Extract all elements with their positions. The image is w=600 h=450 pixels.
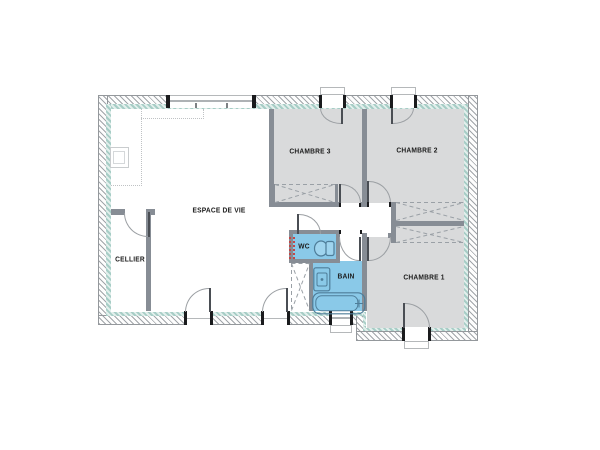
- door-leaf: [286, 288, 288, 312]
- door-threshold: [264, 318, 287, 319]
- bathtub-icon: [312, 292, 366, 315]
- window-frame-line: [170, 95, 252, 96]
- door-leaf-chambre3: [339, 184, 341, 203]
- room-label-espace-de-vie: ESPACE DE VIE: [193, 208, 246, 215]
- toilet-icon: [313, 239, 336, 258]
- window-mullion: [226, 103, 228, 108]
- wardrobe-chambre1: [396, 226, 464, 243]
- door-jamb: [360, 230, 362, 234]
- window-sill-chambre3: [320, 87, 345, 95]
- window-sill-bain: [330, 325, 352, 333]
- door-jamb: [210, 311, 213, 325]
- room-label-chambre2: CHAMBRE 2: [396, 148, 437, 155]
- door-leaf-chambre1: [367, 237, 369, 261]
- floor-plan: ESPACE DE VIE CELLIER CHAMBRE 3 CHAMBRE …: [0, 0, 600, 450]
- window-glass-line: [170, 100, 252, 102]
- window-jamb: [252, 95, 256, 108]
- window-jamb: [343, 95, 346, 108]
- window-chambre3: [319, 95, 346, 108]
- window-jamb: [414, 95, 417, 108]
- door-jamb: [359, 203, 361, 207]
- kitchen-counter: [111, 185, 142, 186]
- door-leaf-chambre2: [367, 181, 369, 203]
- door-jamb: [287, 311, 290, 325]
- window-leaf: [341, 108, 343, 124]
- kitchen-counter: [203, 109, 204, 119]
- door-jamb: [389, 202, 391, 207]
- wardrobe-chambre3: [272, 184, 338, 203]
- door-leaf-cellier: [148, 212, 150, 237]
- wardrobe-chambre2: [396, 202, 464, 221]
- window-mullion: [195, 103, 197, 108]
- kitchen-counter: [141, 109, 142, 186]
- kitchen-counter: [141, 118, 204, 119]
- window-glass-line: [332, 317, 350, 319]
- room-label-chambre3: CHAMBRE 3: [289, 149, 330, 156]
- door-chambre1-exterior: [402, 327, 431, 341]
- door-leaf: [403, 303, 405, 328]
- door-leaf: [209, 288, 211, 312]
- room-label-cellier: CELLIER: [115, 257, 145, 264]
- door-leaf-wc: [297, 214, 299, 234]
- room-label-bain: BAIN: [337, 274, 354, 281]
- wall-chambre3-south-post: [360, 202, 367, 207]
- exterior-wall-bottom-main: [98, 315, 366, 325]
- window-sill-chambre2: [391, 87, 416, 95]
- window-chambre2: [390, 95, 417, 108]
- window-jamb: [319, 95, 322, 108]
- kitchen-sink-bowl: [113, 151, 125, 164]
- window-jamb: [390, 95, 393, 108]
- duct-mark: [289, 237, 291, 259]
- sink-icon: [313, 267, 332, 292]
- duct-mark: [293, 237, 295, 259]
- door-jamb: [428, 327, 431, 341]
- door-jamb: [339, 230, 341, 234]
- door-leaf-bain: [359, 237, 361, 261]
- door-sill-chambre1: [404, 341, 429, 349]
- wall-cellier-top: [111, 209, 125, 215]
- exterior-wall-right: [468, 95, 478, 341]
- door-jamb: [339, 203, 341, 207]
- room-label-wc: WC: [298, 244, 309, 251]
- door-threshold: [187, 318, 210, 319]
- window-leaf: [391, 108, 393, 124]
- door-jamb: [402, 327, 405, 341]
- wardrobe-espace: [291, 263, 310, 311]
- door-jamb: [367, 202, 369, 207]
- room-label-chambre1: CHAMBRE 1: [403, 275, 444, 282]
